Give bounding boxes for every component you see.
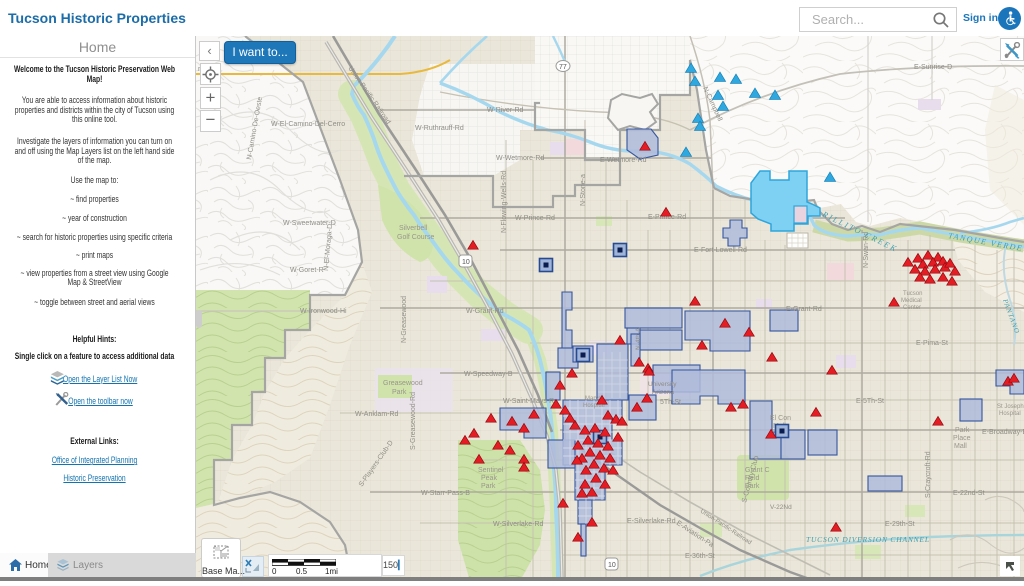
svg-text:N-Stone-a: N-Stone-a xyxy=(580,174,587,206)
svg-text:10: 10 xyxy=(608,562,616,569)
svg-text:Park: Park xyxy=(745,483,760,490)
svg-text:W-Anklam-Rd: W-Anklam-Rd xyxy=(355,411,399,418)
svg-text:77: 77 xyxy=(559,64,567,71)
svg-text:W-Ironwood-Hi: W-Ironwood-Hi xyxy=(300,308,347,315)
svg-text:E-Broadway-B: E-Broadway-B xyxy=(982,429,1024,436)
svg-text:S-Greasewood-Rd: S-Greasewood-Rd xyxy=(410,392,417,450)
svg-text:Park: Park xyxy=(955,427,970,434)
svg-text:N-4th-A: N-4th-A xyxy=(635,327,642,350)
svg-text:Hospital: Hospital xyxy=(999,411,1021,417)
svg-text:N-Flowing-Wells-Rd: N-Flowing-Wells-Rd xyxy=(501,171,508,233)
svg-text:W-Ruthrauff-Rd: W-Ruthrauff-Rd xyxy=(415,125,464,132)
svg-text:Grant C: Grant C xyxy=(745,467,770,474)
svg-text:E-5Th-St: E-5Th-St xyxy=(856,398,884,405)
svg-text:W-Wetmore-Rd: W-Wetmore-Rd xyxy=(496,155,544,162)
svg-text:W-El-Camino-Del-Cerro: W-El-Camino-Del-Cerro xyxy=(271,121,345,128)
svg-text:E-36th-St: E-36th-St xyxy=(685,553,715,560)
svg-text:Greasewood: Greasewood xyxy=(383,380,423,387)
svg-text:TUCSON DIVERSION CHANNEL: TUCSON DIVERSION CHANNEL xyxy=(806,535,930,544)
svg-text:Silverbell: Silverbell xyxy=(399,225,428,232)
svg-text:Arizona: Arizona xyxy=(652,389,674,396)
svg-text:N-Greasewood: N-Greasewood xyxy=(401,296,408,343)
svg-text:Park: Park xyxy=(392,389,407,396)
svg-text:Peak: Peak xyxy=(481,475,497,482)
svg-text:E-Pima-St: E-Pima-St xyxy=(916,340,948,347)
svg-text:Center: Center xyxy=(903,305,921,311)
svg-text:E-Silverlake-Rd: E-Silverlake-Rd xyxy=(627,518,676,525)
svg-text:Medical: Medical xyxy=(901,298,922,304)
svg-text:W-Saint-Mays-R: W-Saint-Mays-R xyxy=(503,398,554,405)
svg-text:Sentinel: Sentinel xyxy=(478,467,504,474)
svg-text:5Th-St: 5Th-St xyxy=(660,399,681,406)
svg-text:E-Wetmore-Rd: E-Wetmore-Rd xyxy=(600,157,647,164)
svg-text:Place: Place xyxy=(953,435,971,442)
svg-text:Tucson: Tucson xyxy=(903,291,922,297)
svg-text:W-Silverlake-Rd: W-Silverlake-Rd xyxy=(493,521,544,528)
svg-text:University: University xyxy=(648,381,677,388)
svg-text:Golf Course: Golf Course xyxy=(397,234,434,241)
svg-text:W-Prince-Rd: W-Prince-Rd xyxy=(515,215,555,222)
svg-text:10: 10 xyxy=(462,259,470,266)
svg-text:E-Sunrise-D: E-Sunrise-D xyxy=(914,64,952,71)
svg-text:Mall: Mall xyxy=(954,443,967,450)
svg-text:El Con: El Con xyxy=(770,415,791,422)
svg-text:S-Craycroft-Rd: S-Craycroft-Rd xyxy=(925,451,932,498)
svg-text:E-Fort-Lowell-Rd: E-Fort-Lowell-Rd xyxy=(694,247,747,254)
svg-text:W-Grant-Rd: W-Grant-Rd xyxy=(466,308,504,315)
svg-text:Park: Park xyxy=(481,483,496,490)
svg-text:W-Goret-R: W-Goret-R xyxy=(290,267,324,274)
svg-text:W-River-Rd: W-River-Rd xyxy=(487,107,524,114)
svg-text:Reid: Reid xyxy=(745,475,760,482)
svg-text:E-22nd-St: E-22nd-St xyxy=(953,490,985,497)
svg-text:E-Grant-Rd: E-Grant-Rd xyxy=(786,306,822,313)
svg-text:St Joseph s: St Joseph s xyxy=(997,404,1024,410)
svg-text:V-22Nd: V-22Nd xyxy=(770,504,792,511)
svg-text:W-Speedway-B: W-Speedway-B xyxy=(464,371,513,378)
svg-text:W-Starr-Pass-B: W-Starr-Pass-B xyxy=(421,490,470,497)
svg-text:E-29th-St: E-29th-St xyxy=(885,521,915,528)
